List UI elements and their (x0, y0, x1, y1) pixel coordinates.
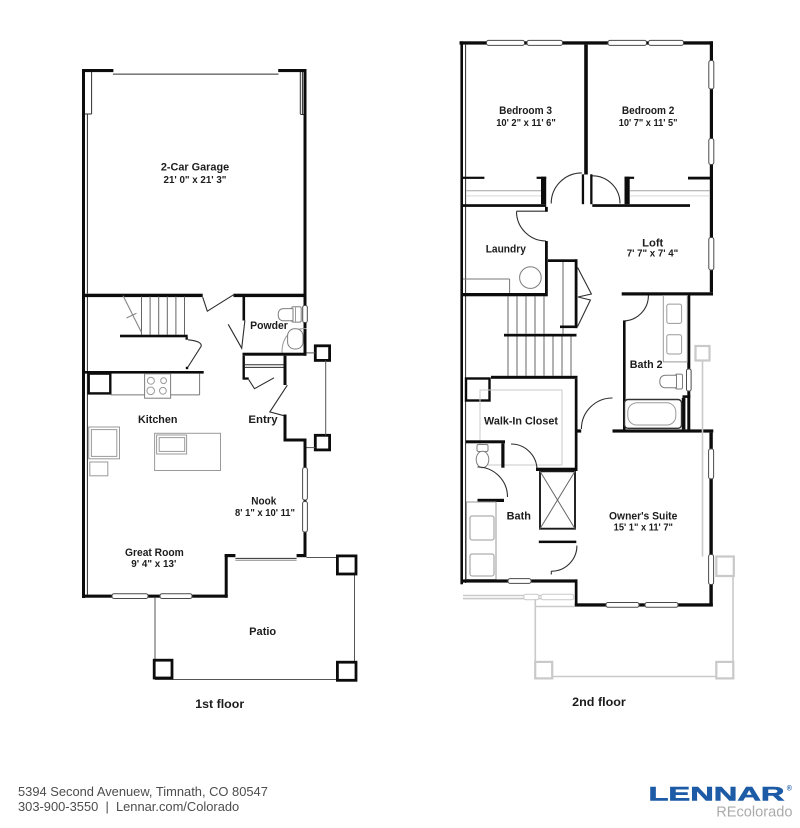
svg-text:Bath 2: Bath 2 (630, 359, 663, 371)
svg-text:Bedroom 3: Bedroom 3 (499, 105, 552, 117)
svg-text:Walk-In Closet: Walk-In Closet (484, 415, 558, 427)
svg-text:Kitchen: Kitchen (138, 414, 178, 426)
svg-text:1st floor: 1st floor (195, 697, 244, 711)
svg-text:15' 1" x 11' 7": 15' 1" x 11' 7" (614, 522, 673, 533)
svg-text:Entry: Entry (248, 414, 278, 426)
svg-text:Bath: Bath (507, 510, 532, 522)
svg-text:Laundry: Laundry (486, 243, 527, 255)
svg-text:5394 Second Avenuew, Timnath,: 5394 Second Avenuew, Timnath, CO 80547 (18, 784, 268, 799)
svg-text:9' 4" x 13': 9' 4" x 13' (131, 559, 176, 570)
svg-text:LENNAR: LENNAR (649, 785, 785, 806)
svg-text:®: ® (787, 785, 793, 793)
svg-text:8' 1" x 10' 11": 8' 1" x 10' 11" (235, 508, 295, 519)
svg-text:Powder: Powder (250, 320, 288, 332)
svg-text:Nook: Nook (251, 495, 277, 507)
svg-text:7' 7" x 7' 4": 7' 7" x 7' 4" (627, 249, 679, 260)
svg-text:2nd floor: 2nd floor (572, 695, 626, 709)
svg-text:21' 0" x 21' 3": 21' 0" x 21' 3" (164, 175, 227, 186)
svg-text:2-Car Garage: 2-Car Garage (161, 162, 229, 174)
svg-text:REcolorado: REcolorado (716, 804, 792, 820)
svg-text:Owner's Suite: Owner's Suite (609, 510, 677, 522)
svg-text:10' 7" x 11' 5": 10' 7" x 11' 5" (619, 118, 678, 129)
svg-text:Great Room: Great Room (125, 547, 184, 559)
svg-text:Patio: Patio (249, 626, 276, 638)
svg-text:303-900-3550 | Lennar.com/Co: 303-900-3550 | Lennar.com/Colorado (18, 799, 239, 814)
svg-text:10' 2" x 11' 6": 10' 2" x 11' 6" (496, 118, 556, 129)
svg-text:Bedroom 2: Bedroom 2 (622, 105, 675, 117)
